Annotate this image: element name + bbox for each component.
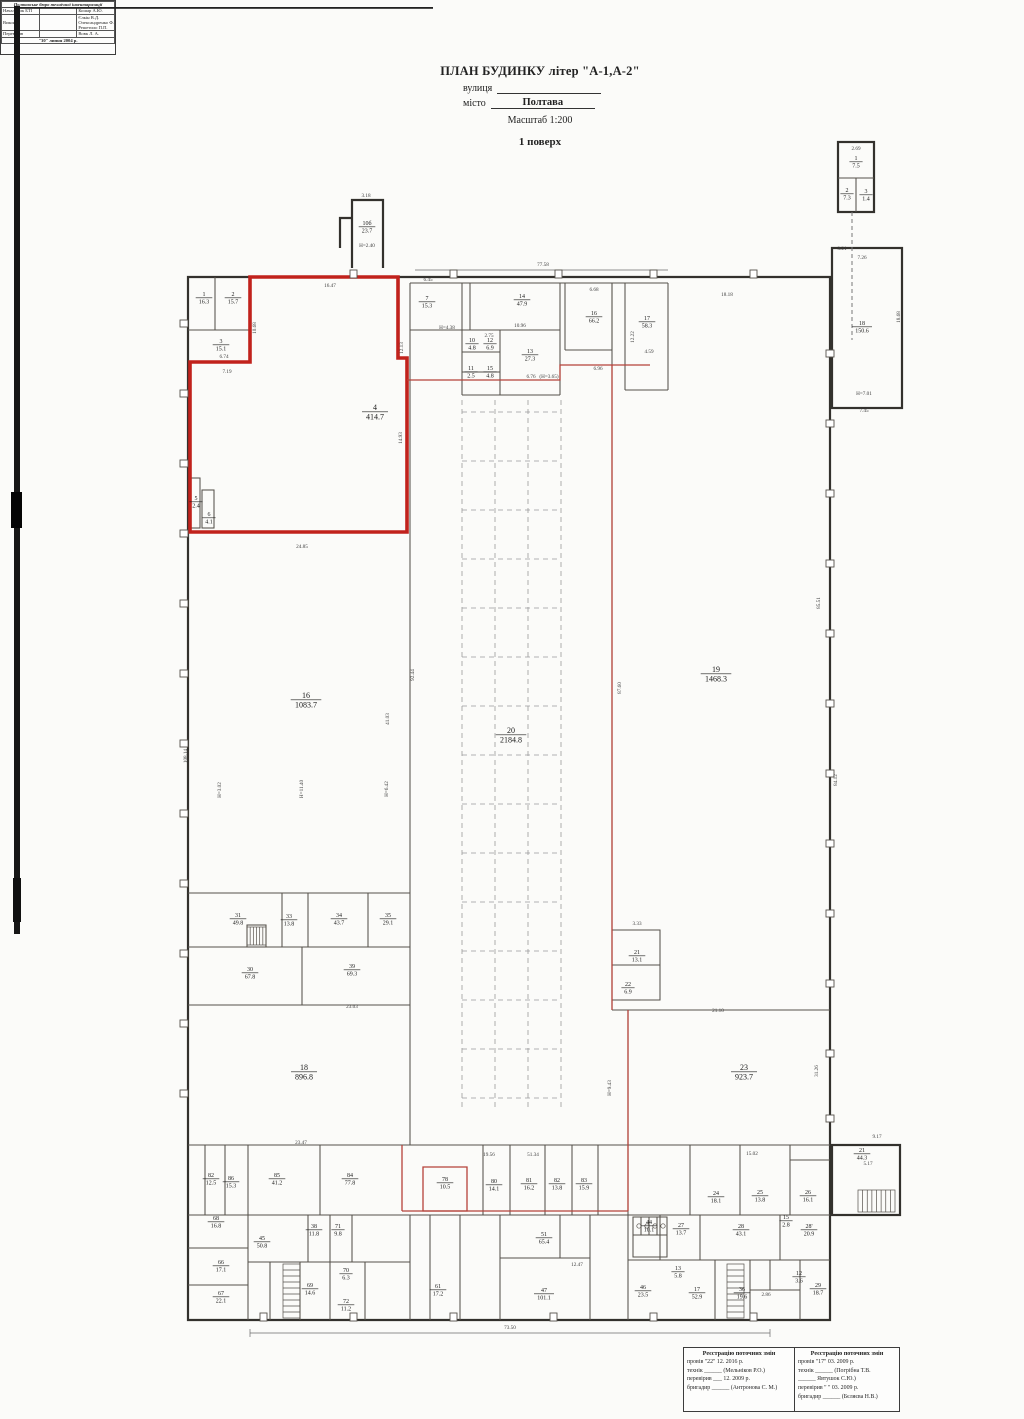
svg-text:17.2: 17.2 [433,1292,444,1298]
svg-text:80: 80 [491,1179,497,1185]
dimension-label: 12.47 [571,1262,583,1268]
dimension-label: 77.58 [537,262,549,268]
svg-text:43.1: 43.1 [736,1232,747,1238]
svg-text:67: 67 [218,1291,224,1297]
room-label: 202184.8 [496,726,527,744]
dimension-label: 18.18 [721,292,733,298]
room-label: 161083.7 [291,691,322,709]
svg-text:19: 19 [712,665,720,674]
svg-text:30: 30 [247,967,253,973]
svg-text:52.9: 52.9 [692,1295,703,1301]
dimension-label: 73.50 [504,1325,516,1331]
svg-text:47: 47 [541,1288,547,1294]
svg-text:46: 46 [640,1285,646,1291]
dimension-label: 23.03 [346,1004,358,1010]
svg-text:2: 2 [846,188,849,194]
svg-text:13.8: 13.8 [552,1186,563,1192]
city-value: Полтава [522,97,563,108]
svg-text:13: 13 [527,349,533,355]
room-label: 6617.1 [213,1260,230,1274]
stamp1-line4: бригадир ______ (Антронова С. М.) [687,1384,791,1393]
dimension-label: 19.56 [483,1152,495,1158]
dimension-label: 6.76 [526,374,535,380]
room-label: 191468.3 [701,665,732,683]
svg-text:1: 1 [855,156,858,162]
room-label: 3149.8 [230,913,247,927]
svg-text:29.1: 29.1 [383,921,394,927]
dimension-label: 12.22 [630,331,636,343]
svg-text:18: 18 [300,1063,308,1072]
room-label: 154.8 [483,366,496,380]
svg-text:896.8: 896.8 [295,1072,313,1081]
dimension-label: 10.68 [252,322,258,334]
dimension-label: 23.47 [295,1140,307,1146]
svg-text:78: 78 [442,1177,448,1183]
svg-text:17: 17 [644,316,650,322]
dimension-label: 2.75 [484,333,493,339]
svg-text:15.3: 15.3 [422,304,433,310]
svg-text:1: 1 [203,292,206,298]
svg-text:2: 2 [232,292,235,298]
svg-text:21: 21 [634,950,640,956]
svg-text:5: 5 [195,496,198,502]
dimension-label: 16.47 [324,283,336,289]
svg-text:16.3: 16.3 [199,300,210,306]
room-label: 3313.8 [281,914,298,928]
room-label: 215.7 [225,292,242,306]
svg-text:31: 31 [235,913,241,919]
room-label: 8477.8 [342,1173,359,1187]
registration-stamp-2016: Реєстрацію поточних змін провів "22" 12.… [683,1347,795,1412]
dimension-label: 84.12 [833,774,839,786]
room-label: 4550.8 [254,1236,271,1250]
svg-text:2.5: 2.5 [467,374,475,380]
svg-text:17: 17 [694,1287,700,1293]
room-label: 2616.1 [800,1190,817,1204]
room-label: 6722.1 [213,1291,230,1305]
svg-text:12: 12 [796,1271,802,1277]
stamp2-line4: перевірив " " 03. 2009 р. [798,1384,896,1393]
dimension-label: Н=9.43 [607,1080,613,1096]
floor-label: 1 поверх [420,136,660,148]
svg-text:41.2: 41.2 [272,1181,283,1187]
room-label: 23923.7 [731,1063,757,1081]
svg-text:16.2: 16.2 [524,1186,535,1192]
room-label: 2113.1 [629,950,646,964]
svg-text:68: 68 [213,1216,219,1222]
stairs-icon [283,1264,300,1318]
room-label: 6117.2 [430,1284,447,1298]
svg-text:7.3: 7.3 [843,196,851,202]
svg-text:16: 16 [302,691,310,700]
svg-text:82: 82 [208,1173,214,1179]
svg-text:19.6: 19.6 [737,1295,748,1301]
svg-text:7.5: 7.5 [852,164,860,170]
svg-text:5.8: 5.8 [674,1274,682,1280]
svg-text:16.1: 16.1 [803,1198,814,1204]
room-label: 2843.1 [733,1224,750,1238]
street-blank-line [497,82,601,94]
svg-text:1.4: 1.4 [862,197,870,203]
svg-text:2184.8: 2184.8 [500,735,522,744]
svg-text:65.4: 65.4 [539,1240,550,1246]
room-label: 2918.7 [810,1283,827,1297]
svg-text:77.8: 77.8 [345,1181,356,1187]
dimension-label: 18.68 [896,311,902,323]
dimension-label: 92.44 [410,669,416,681]
svg-text:72: 72 [343,1299,349,1305]
city-value-line: Полтава [491,97,595,109]
dimension-label: 14.93 [398,432,404,444]
title-block: ПЛАН БУДИНКУ літер "А-1,А-2" вулиця міст… [420,64,660,148]
room-label: 17.5 [849,156,862,170]
room-label: 126.9 [483,338,496,352]
dimension-label: 87.60 [617,682,623,694]
svg-text:14: 14 [519,294,525,300]
svg-text:33: 33 [286,914,292,920]
registration-stamp-2009: Реєстрацію поточних змін провів "17" 03.… [794,1347,900,1412]
dimension-label: 10.96 [514,323,526,329]
dimension-label: 5.17 [863,1161,872,1167]
svg-text:16: 16 [591,311,597,317]
stairs-icon [858,1190,895,1212]
room-label: 719.8 [331,1224,344,1238]
room-label: 2513.8 [752,1190,769,1204]
scanned-floor-plan-page: 116.3215.7315.14414.752.464.110б23.7715.… [0,0,1024,1419]
room-label: 1447.9 [514,294,531,308]
svg-text:4.1: 4.1 [205,520,213,526]
svg-text:13: 13 [675,1266,681,1272]
room-label: 2713.7 [673,1223,690,1237]
svg-text:414.7: 414.7 [366,412,384,421]
room-label: 5165.4 [536,1232,553,1246]
svg-text:51: 51 [541,1232,547,1238]
room-label: 135.8 [671,1266,684,1280]
room-label: 8213.8 [549,1178,566,1192]
dimension-label: 6.45 [423,277,432,283]
dimension-label: 41.03 [385,713,391,725]
room-label: 112.5 [464,366,477,380]
room-label: 31.4 [859,189,872,203]
svg-text:26: 26 [805,1190,811,1196]
svg-text:10.1: 10.1 [644,1228,655,1234]
stamp1-line3: перевірив ___ 12. 2009 р. [687,1375,791,1384]
svg-text:71: 71 [335,1224,341,1230]
stamp2-line2: технік ______ (Погрібна Т.В. [798,1367,896,1376]
room-label: 8315.9 [576,1178,593,1192]
room-label: 47101.1 [534,1288,554,1302]
svg-text:14.6: 14.6 [305,1291,316,1297]
room-label: 315.1 [213,339,230,353]
svg-text:20.9: 20.9 [804,1232,815,1238]
svg-text:47.9: 47.9 [517,302,528,308]
dimension-label: Н=7.01 [856,391,872,397]
svg-text:10: 10 [469,338,475,344]
svg-text:27.3: 27.3 [525,357,536,363]
svg-text:9.8: 9.8 [334,1232,342,1238]
dimension-label: 108.14 [183,748,189,763]
svg-text:101.1: 101.1 [537,1296,551,1302]
room-label: 4623.5 [635,1285,652,1299]
svg-text:21: 21 [859,1148,865,1154]
room-label: 28'20.9 [801,1224,818,1238]
dimension-label: 21.10 [712,1008,724,1014]
svg-text:3: 3 [865,189,868,195]
svg-text:6.3: 6.3 [342,1276,350,1282]
svg-text:1468.3: 1468.3 [705,674,727,683]
room-label: 27.3 [840,188,853,202]
dimension-label: 7.19 [222,369,231,375]
dimension-label: 9.17 [872,1134,881,1140]
svg-text:6.9: 6.9 [486,346,494,352]
room-label: 8014.1 [486,1179,503,1193]
stamp2-line3: ______ Явтушок С.Ю.) [798,1375,896,1384]
svg-text:22: 22 [625,982,631,988]
svg-text:27: 27 [678,1223,684,1229]
svg-text:49.8: 49.8 [233,921,244,927]
svg-text:1083.7: 1083.7 [295,700,317,709]
svg-text:923.7: 923.7 [735,1072,753,1081]
room-label: 3067.8 [242,967,259,981]
room-label: 18896.8 [291,1063,317,1081]
svg-text:24: 24 [713,1191,719,1197]
svg-text:22.1: 22.1 [216,1299,227,1305]
svg-text:43.7: 43.7 [334,921,345,927]
svg-text:61: 61 [435,1284,441,1290]
dimension-label: 4.59 [644,349,653,355]
svg-text:44: 44 [646,1220,652,1226]
dimension-label: 31.26 [814,1065,820,1077]
svg-text:14.1: 14.1 [489,1187,500,1193]
svg-text:35: 35 [385,913,391,919]
svg-text:3: 3 [220,339,223,345]
stamp2-line1: провів "17" 03. 2009 р. [798,1358,896,1367]
svg-text:39: 39 [349,964,355,970]
svg-text:66: 66 [218,1260,224,1266]
svg-text:18.1: 18.1 [711,1199,722,1205]
svg-text:81: 81 [526,1178,532,1184]
scale-label: Масштаб 1:200 [420,115,660,126]
svg-text:13.1: 13.1 [632,958,643,964]
street-row: вулиця [463,82,660,94]
svg-text:15.3: 15.3 [226,1184,237,1190]
svg-text:38: 38 [311,1224,317,1230]
dimension-label: 6.74 [219,354,228,360]
dimension-label: 3.33 [632,921,641,927]
svg-text:15.1: 15.1 [216,347,227,353]
svg-text:83: 83 [581,1178,587,1184]
dimension-label: 15.02 [746,1151,758,1157]
svg-text:45: 45 [259,1236,265,1242]
room-label: 6914.6 [302,1283,319,1297]
room-label: 104.8 [465,338,478,352]
dimension-label: 2.86 [761,1292,770,1298]
room-label: 18150.6 [852,321,872,335]
svg-text:15: 15 [783,1215,789,1221]
svg-text:18: 18 [859,321,865,327]
svg-text:10б: 10б [362,220,371,227]
plan-title: ПЛАН БУДИНКУ літер "А-1,А-2" [420,64,660,79]
svg-text:34: 34 [336,913,342,919]
svg-text:85: 85 [274,1173,280,1179]
room-label: 152.8 [779,1215,792,1229]
svg-text:23.5: 23.5 [638,1293,649,1299]
svg-text:28: 28 [738,1224,744,1230]
svg-text:2.4: 2.4 [192,504,200,510]
svg-text:82: 82 [554,1178,560,1184]
dimension-label: 6.68 [589,287,598,293]
room-label: 1752.9 [689,1287,706,1301]
dimension-label: Н=11.40 [299,780,305,799]
room-label: 2418.1 [708,1191,725,1205]
dimension-label: 7.45 [859,408,868,414]
svg-text:7: 7 [426,296,429,302]
room-label: 10б23.7 [359,220,376,235]
city-row: містоПолтава [463,97,660,109]
svg-text:16.8: 16.8 [211,1224,222,1230]
svg-text:66.2: 66.2 [589,319,600,325]
svg-text:28': 28' [805,1224,812,1230]
svg-text:67.8: 67.8 [245,975,256,981]
room-label: 3443.7 [331,913,348,927]
svg-text:58.3: 58.3 [642,324,653,330]
room-label: 4414.7 [362,403,388,421]
room-label: 706.3 [339,1268,352,1282]
svg-text:69: 69 [307,1283,313,1289]
svg-text:25: 25 [757,1190,763,1196]
dimension-label: 2.69 [851,146,860,152]
room-label: 8116.2 [521,1178,538,1192]
column-grid [462,400,561,1108]
room-label: 116.3 [196,292,213,306]
svg-text:15.7: 15.7 [228,300,239,306]
room-label: 8541.2 [269,1173,286,1187]
svg-text:11.8: 11.8 [309,1232,319,1238]
svg-text:17.1: 17.1 [216,1268,227,1274]
svg-text:84: 84 [347,1173,353,1179]
svg-text:13.7: 13.7 [676,1231,687,1237]
room-label: 123.6 [792,1271,805,1285]
dimension-label: 6.96 [593,366,602,372]
svg-text:36: 36 [739,1287,745,1293]
dimension-label: Н=6.42 [384,781,390,797]
room-label: 3619.6 [734,1287,751,1301]
svg-text:4.8: 4.8 [486,374,494,380]
room-label: 3969.3 [344,964,361,978]
svg-text:86: 86 [228,1176,234,1182]
svg-text:20: 20 [507,726,515,735]
dimension-label: Н=2.40 [359,243,375,249]
svg-text:11: 11 [468,366,474,372]
street-label: вулиця [463,83,492,94]
dimension-label: 7.26 [857,255,866,261]
svg-text:23: 23 [740,1063,748,1072]
room-label: 6816.8 [208,1216,225,1230]
svg-text:70: 70 [343,1268,349,1274]
stamp1-line2: технік ______ (Мельніков Р.О.) [687,1367,791,1376]
svg-text:23.7: 23.7 [362,229,373,235]
stamp2-line5: бригадир ______ (Бєляєва Н.В.) [798,1393,896,1402]
svg-text:6: 6 [208,512,211,518]
dimension-label: 3.18 [361,193,370,199]
dimension-label: 12.13 [399,342,405,354]
room-label: 1666.2 [586,311,603,325]
floor-plan-svg: 116.3215.7315.14414.752.464.110б23.7715.… [0,0,1024,1419]
dimension-label: 3.21 [837,246,846,252]
room-label: 1327.3 [522,349,539,363]
svg-text:150.6: 150.6 [855,329,869,335]
stamp1-line1: провів "22" 12. 2016 р. [687,1358,791,1367]
wall-pilasters [180,270,834,1321]
room-label: 226.9 [621,982,634,996]
dimension-label: (Н=3.65) [539,373,558,380]
svg-text:3.6: 3.6 [795,1279,803,1285]
room-label: 7211.2 [338,1299,355,1313]
svg-text:13.8: 13.8 [755,1198,766,1204]
dimension-label: Н=3.02 [217,782,223,798]
stairs-icon [247,927,266,945]
svg-text:12.5: 12.5 [206,1181,217,1187]
dimension-label: 51.34 [527,1152,539,1158]
dimension-labels: 77.5816.476.4518.186.683.18Н=2.402.6910.… [183,146,902,1331]
room-label: 4410.1 [641,1220,658,1234]
room-label: 1758.3 [639,316,656,330]
svg-text:29: 29 [815,1283,821,1289]
dimension-label: 24.85 [296,544,308,550]
svg-text:13.8: 13.8 [284,922,295,928]
svg-text:10.5: 10.5 [440,1185,451,1191]
stamp1-header: Реєстрацію поточних змін [687,1350,791,1358]
room-label: 3529.1 [380,913,397,927]
svg-text:2.8: 2.8 [782,1223,790,1229]
room-label: 7810.5 [437,1177,454,1191]
svg-text:15: 15 [487,366,493,372]
svg-text:18.7: 18.7 [813,1291,824,1297]
city-label: місто [463,98,486,109]
room-label: 2144.3 [854,1148,871,1162]
svg-text:50.8: 50.8 [257,1244,268,1250]
dimension-label: 85.51 [816,597,822,609]
svg-text:6.9: 6.9 [624,990,632,996]
highlighted-unit-outline [190,277,650,1211]
svg-text:4: 4 [373,403,377,412]
svg-text:15.9: 15.9 [579,1186,590,1192]
svg-text:69.3: 69.3 [347,972,358,978]
dimension-label: Н=4.38 [439,325,455,331]
svg-text:4.8: 4.8 [468,346,476,352]
room-label: 715.3 [419,296,436,310]
stamp2-header: Реєстрацію поточних змін [798,1350,896,1358]
svg-text:11.2: 11.2 [341,1307,351,1313]
